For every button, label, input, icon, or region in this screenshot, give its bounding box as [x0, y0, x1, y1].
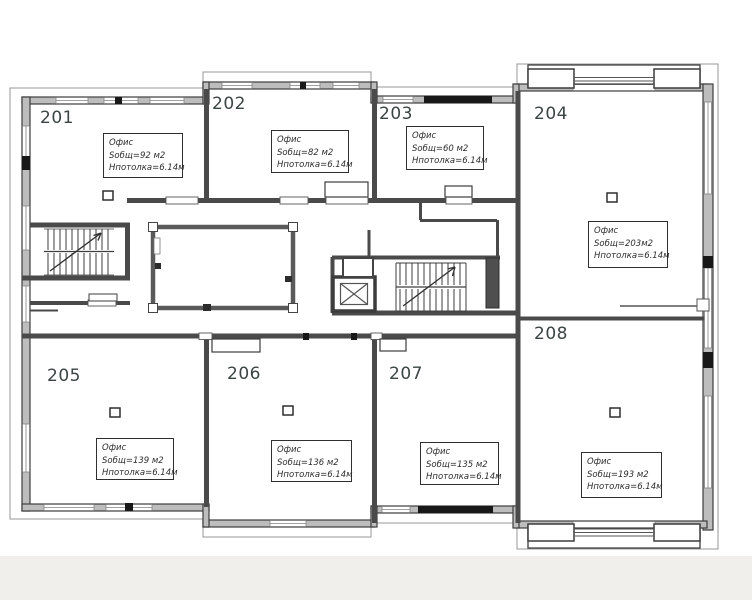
- room-area-label: Sобщ=203м2: [594, 238, 663, 251]
- room-area-label: Sобщ=82 м2: [277, 147, 344, 160]
- elevator-icon: [333, 258, 499, 311]
- room-type-label: Офис: [587, 456, 657, 469]
- room-206-number: 206: [227, 364, 261, 384]
- atrium-void: [149, 223, 298, 313]
- room-ceiling-label: Нпотолка=6.14м: [277, 159, 344, 172]
- room-area-label: Sобщ=135 м2: [426, 459, 494, 472]
- balcony-top: [528, 65, 700, 88]
- room-202-info-box: Офис Sобщ=82 м2 Нпотолка=6.14м: [271, 130, 349, 173]
- room-type-label: Офис: [277, 134, 344, 147]
- background-strip: [0, 556, 752, 600]
- floor-plan-canvas: 201 202 203 204 205 206 207 208 Офис Sоб…: [0, 0, 752, 600]
- room-207-info-box: Офис Sобщ=135 м2 Нпотолка=6.14м: [420, 442, 499, 485]
- room-type-label: Офис: [594, 225, 663, 238]
- room-208-info-box: Офис Sобщ=193 м2 Нпотолка=6.14м: [581, 452, 662, 498]
- room-ceiling-label: Нпотолка=6.14м: [412, 155, 479, 168]
- room-type-label: Офис: [109, 137, 178, 150]
- room-ceiling-label: Нпотолка=6.14м: [426, 471, 494, 484]
- room-area-label: Sобщ=136 м2: [277, 457, 347, 470]
- room-type-label: Офис: [277, 444, 347, 457]
- left-staircase-icon: [44, 229, 114, 275]
- room-203-number: 203: [379, 104, 413, 124]
- center-staircase-icon: [396, 263, 466, 311]
- room-area-label: Sобщ=60 м2: [412, 143, 479, 156]
- room-206-info-box: Офис Sобщ=136 м2 Нпотолка=6.14м: [271, 440, 352, 482]
- room-204-info-box: Офис Sобщ=203м2 Нпотолка=6.14м: [588, 221, 668, 268]
- room-type-label: Офис: [102, 442, 169, 455]
- room-ceiling-label: Нпотолка=6.14м: [594, 250, 663, 263]
- room-ceiling-label: Нпотолка=6.14м: [109, 162, 178, 175]
- room-204-number: 204: [534, 104, 568, 124]
- room-ceiling-label: Нпотолка=6.14м: [277, 469, 347, 482]
- room-type-label: Офис: [412, 130, 479, 143]
- room-type-label: Офис: [426, 446, 494, 459]
- room-ceiling-label: Нпотолка=6.14м: [587, 481, 657, 494]
- room-area-label: Sобщ=139 м2: [102, 455, 169, 468]
- room-201-info-box: Офис Sобщ=92 м2 Нпотолка=6.14м: [103, 133, 183, 178]
- room-area-label: Sобщ=193 м2: [587, 469, 657, 482]
- room-205-info-box: Офис Sобщ=139 м2 Нпотолка=6.14м: [96, 438, 174, 480]
- room-area-label: Sобщ=92 м2: [109, 150, 178, 163]
- door-openings: [88, 182, 472, 352]
- room-201-number: 201: [40, 108, 74, 128]
- room-202-number: 202: [212, 94, 246, 114]
- room-ceiling-label: Нпотолка=6.14м: [102, 467, 169, 480]
- room-205-number: 205: [47, 366, 81, 386]
- room-208-number: 208: [534, 324, 568, 344]
- room-203-info-box: Офис Sобщ=60 м2 Нпотолка=6.14м: [406, 126, 484, 170]
- floor-plan-svg: [0, 0, 752, 600]
- room-207-number: 207: [389, 364, 423, 384]
